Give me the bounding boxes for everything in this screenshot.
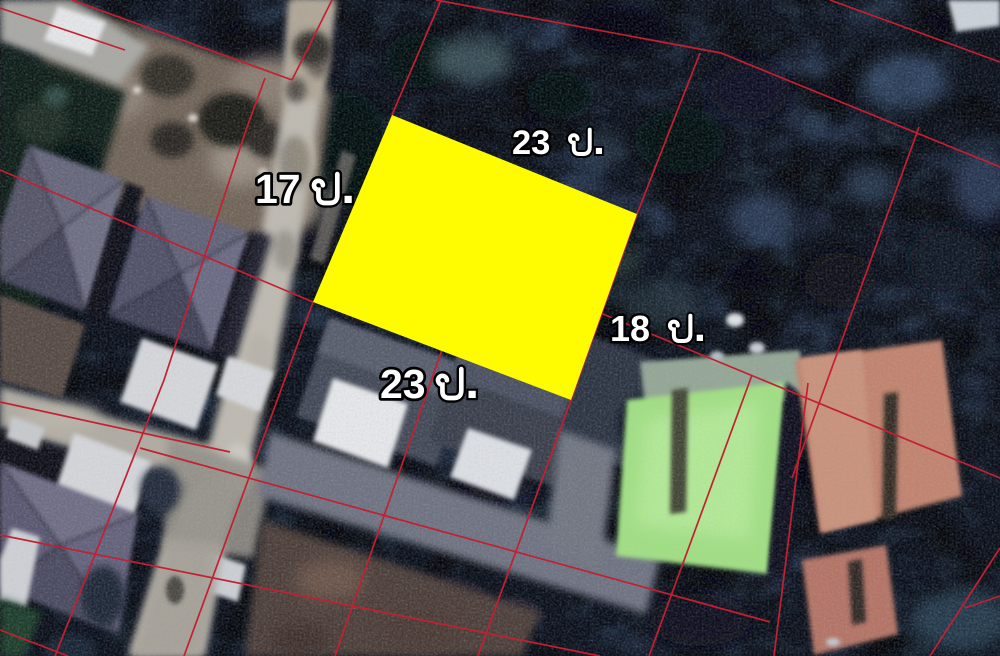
svg-text:18: 18 bbox=[610, 308, 650, 349]
svg-text:23: 23 bbox=[380, 361, 426, 407]
svg-text:23: 23 bbox=[512, 124, 550, 162]
svg-text:17: 17 bbox=[255, 166, 301, 212]
